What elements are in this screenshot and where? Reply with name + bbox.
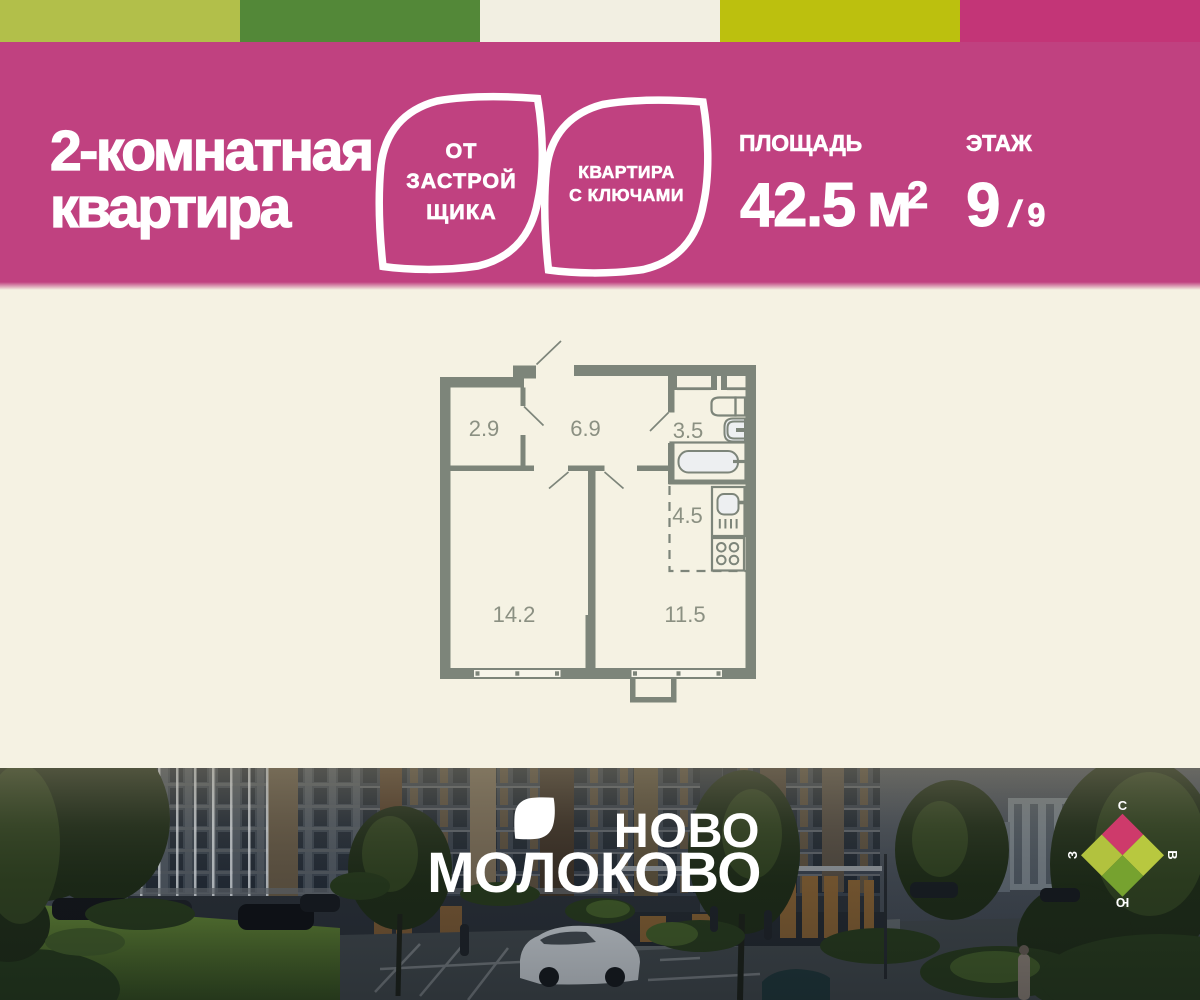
svg-text:11.5: 11.5 (664, 602, 705, 627)
svg-text:В: В (1165, 850, 1180, 859)
svg-text:6.9: 6.9 (570, 416, 601, 441)
svg-text:С: С (1118, 798, 1128, 813)
svg-text:МОЛОКОВО: МОЛОКОВО (427, 841, 761, 905)
svg-text:2.9: 2.9 (469, 416, 500, 441)
svg-text:4.5: 4.5 (672, 503, 703, 528)
svg-text:3.5: 3.5 (673, 418, 704, 443)
svg-text:Ю: Ю (1116, 895, 1129, 910)
svg-text:З: З (1065, 851, 1080, 859)
svg-text:14.2: 14.2 (493, 602, 536, 627)
